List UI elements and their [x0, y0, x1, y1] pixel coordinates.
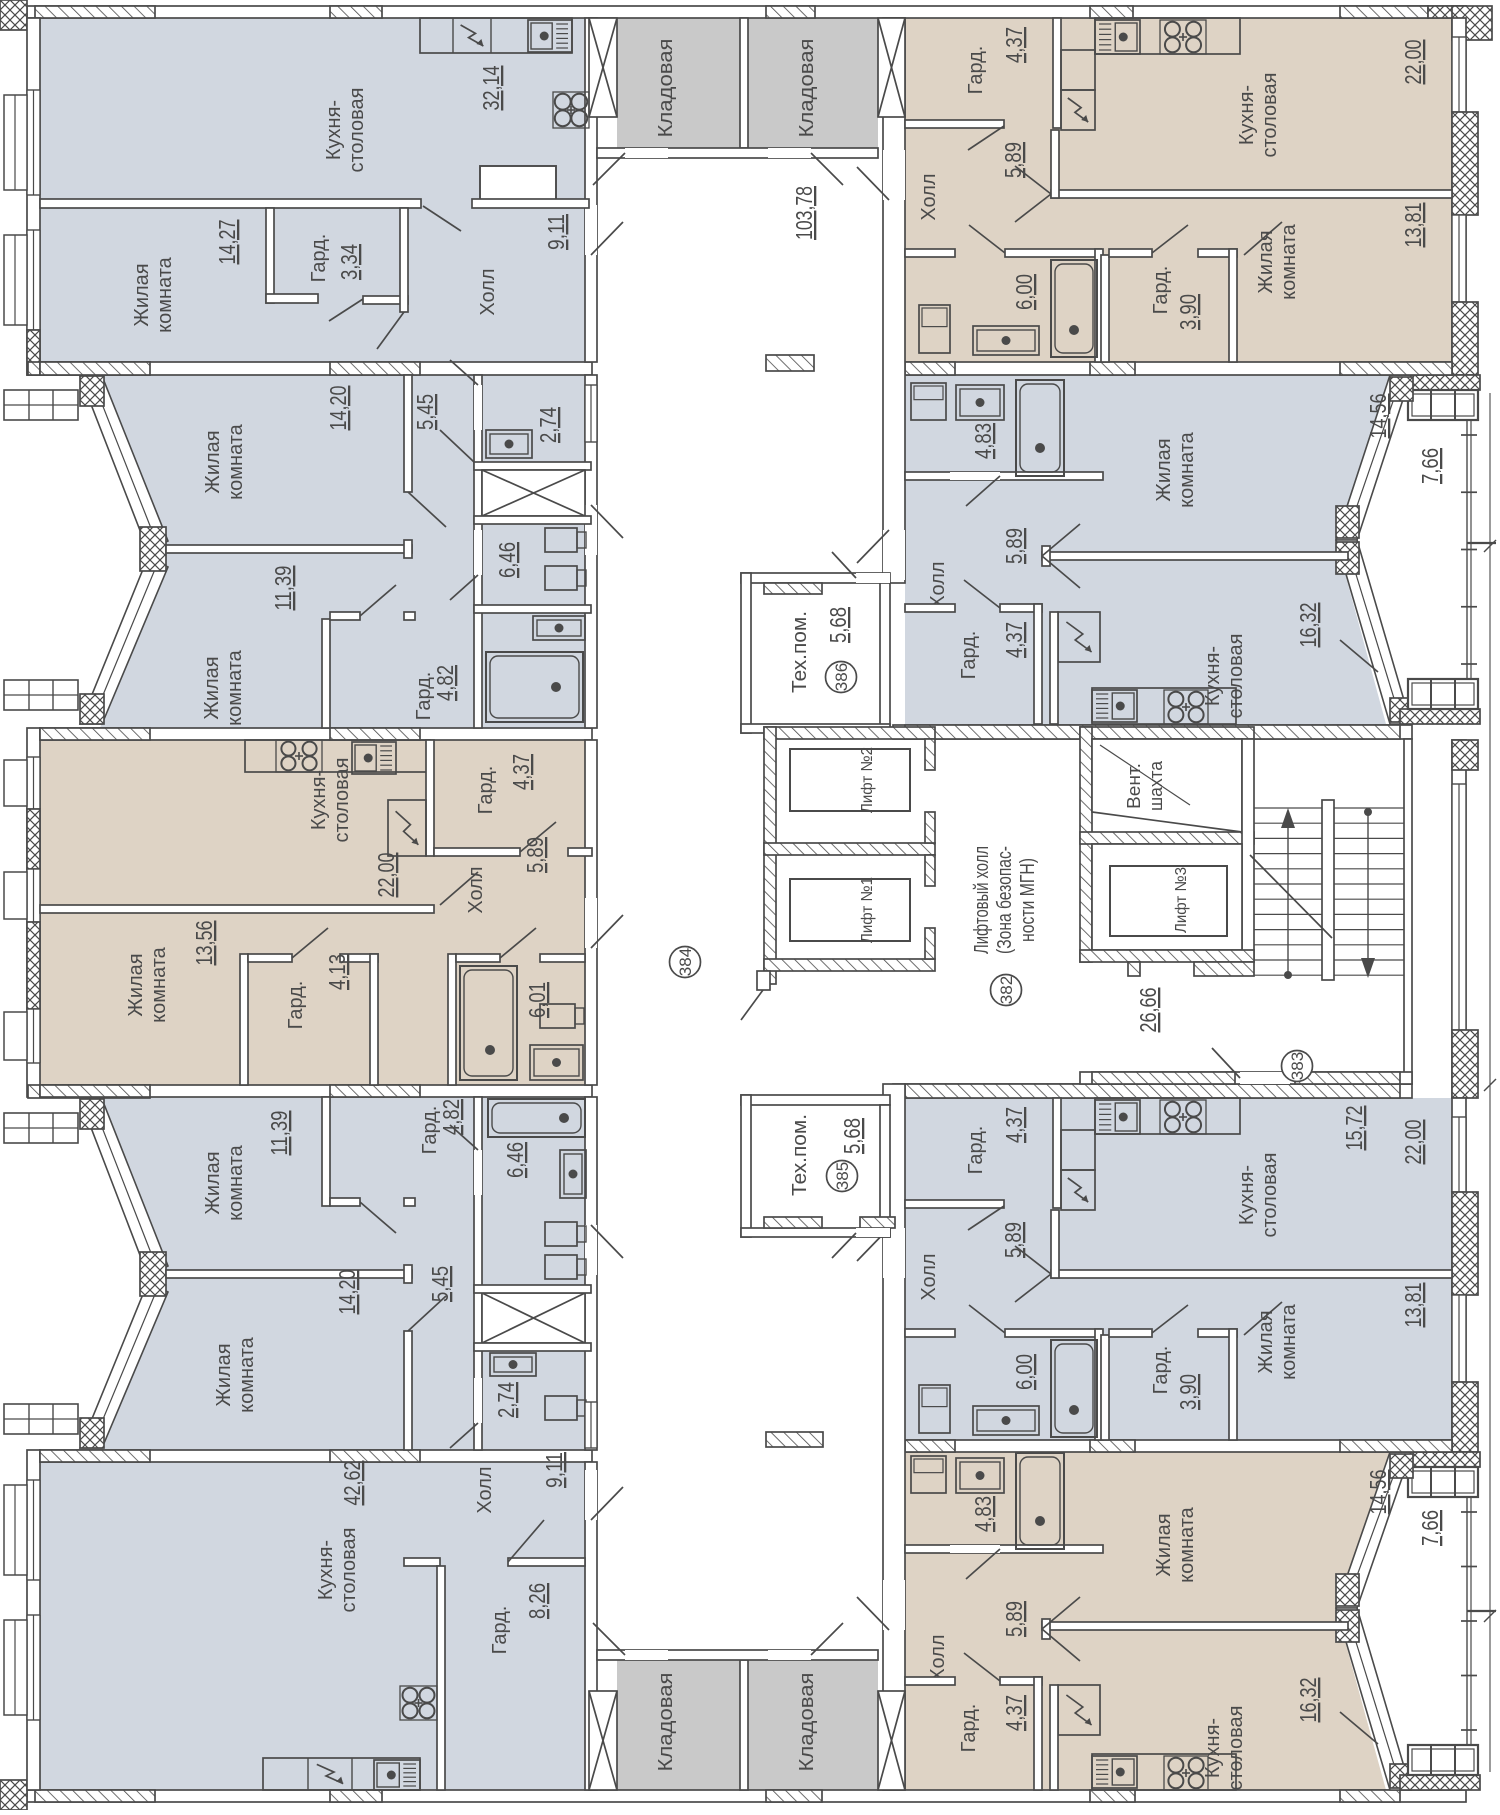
svg-text:6,46: 6,46 [502, 1142, 528, 1178]
svg-text:2,74: 2,74 [535, 407, 561, 443]
svg-text:Кухня-: Кухня- [1236, 1165, 1258, 1225]
svg-text:столовая: столовая [338, 1528, 360, 1613]
svg-text:5,89: 5,89 [522, 837, 548, 873]
svg-text:11,39: 11,39 [266, 1111, 292, 1156]
svg-text:комната: комната [1278, 223, 1300, 300]
svg-text:385: 385 [833, 1162, 852, 1190]
svg-text:комната: комната [236, 1336, 258, 1413]
svg-text:комната: комната [154, 256, 176, 333]
svg-text:Кухня-: Кухня- [315, 1540, 337, 1600]
svg-text:Кухня-: Кухня- [323, 100, 345, 160]
svg-text:ности МГН): ности МГН) [1017, 858, 1039, 942]
svg-text:5,45: 5,45 [412, 394, 438, 430]
svg-text:Жилая: Жилая [131, 263, 153, 326]
svg-text:Гард.: Гард. [285, 981, 307, 1030]
svg-text:Жилая: Жилая [202, 430, 224, 493]
svg-text:7,66: 7,66 [1417, 1510, 1443, 1546]
svg-text:4,83: 4,83 [970, 1496, 996, 1532]
svg-text:Лифт №3: Лифт №3 [1173, 867, 1190, 933]
svg-text:Лифтовый холл: Лифтовый холл [971, 846, 993, 954]
svg-text:Кладовая: Кладовая [655, 1673, 677, 1772]
svg-text:Холл: Холл [465, 866, 487, 913]
svg-text:4,37: 4,37 [1001, 622, 1027, 658]
svg-text:3,34: 3,34 [336, 244, 362, 280]
svg-text:5,68: 5,68 [839, 1118, 865, 1154]
svg-text:Гард.: Гард. [965, 46, 987, 95]
svg-text:Гард.: Гард. [958, 1704, 980, 1753]
svg-text:Тех.пом.: Тех.пом. [789, 611, 811, 693]
svg-text:4,37: 4,37 [1001, 1695, 1027, 1731]
svg-text:8,26: 8,26 [524, 1583, 550, 1619]
svg-text:Тех.пом.: Тех.пом. [789, 1114, 811, 1196]
svg-text:Кладовая: Кладовая [796, 39, 818, 138]
svg-text:4,82: 4,82 [432, 665, 458, 701]
svg-text:Холл: Холл [927, 561, 949, 608]
svg-text:13,56: 13,56 [191, 921, 217, 966]
svg-text:11,39: 11,39 [270, 566, 296, 611]
svg-text:Кухня-: Кухня- [1202, 646, 1224, 706]
svg-text:6,00: 6,00 [1011, 1354, 1037, 1390]
svg-text:Жилая: Жилая [213, 1343, 235, 1406]
svg-text:Лифт №1: Лифт №1 [859, 877, 876, 943]
svg-text:2,74: 2,74 [493, 1382, 519, 1418]
svg-text:комната: комната [148, 946, 170, 1023]
svg-text:Кухня-: Кухня- [1202, 1718, 1224, 1778]
svg-text:4,37: 4,37 [1001, 1107, 1027, 1143]
svg-text:Кладовая: Кладовая [655, 39, 677, 138]
svg-text:5,45: 5,45 [427, 1266, 453, 1302]
svg-text:столовая: столовая [1259, 1153, 1281, 1238]
svg-text:26,66: 26,66 [1135, 988, 1161, 1033]
svg-text:Холл: Холл [474, 1466, 496, 1513]
svg-text:5,89: 5,89 [1001, 528, 1027, 564]
svg-text:14,20: 14,20 [334, 1270, 360, 1315]
svg-text:14,27: 14,27 [214, 220, 240, 265]
svg-text:6,01: 6,01 [524, 982, 550, 1018]
svg-text:Гард.: Гард. [308, 234, 330, 283]
svg-text:4,82: 4,82 [438, 1099, 464, 1135]
svg-text:384: 384 [676, 948, 695, 976]
svg-text:32,14: 32,14 [478, 65, 504, 110]
svg-text:3,90: 3,90 [1175, 1374, 1201, 1410]
svg-text:4,37: 4,37 [508, 754, 534, 790]
svg-text:Жилая: Жилая [1255, 1310, 1277, 1373]
svg-text:22,00: 22,00 [1400, 40, 1426, 85]
svg-text:Гард.: Гард. [1150, 266, 1172, 315]
svg-text:382: 382 [997, 976, 1016, 1004]
svg-text:13,81: 13,81 [1400, 203, 1426, 248]
svg-text:(Зона безопас-: (Зона безопас- [994, 846, 1016, 954]
svg-text:комната: комната [225, 423, 247, 500]
svg-text:5,89: 5,89 [1001, 1601, 1027, 1637]
svg-text:4,37: 4,37 [1001, 27, 1027, 63]
svg-text:Жилая: Жилая [1153, 438, 1175, 501]
svg-text:7,66: 7,66 [1417, 448, 1443, 484]
svg-text:15,72: 15,72 [1341, 1106, 1367, 1151]
svg-text:5,68: 5,68 [825, 607, 851, 643]
svg-text:5,89: 5,89 [1000, 1222, 1026, 1258]
svg-text:Жилая: Жилая [1153, 1513, 1175, 1576]
svg-text:Кухня-: Кухня- [308, 770, 330, 830]
svg-text:6,46: 6,46 [494, 542, 520, 578]
svg-text:Жилая: Жилая [202, 1151, 224, 1214]
svg-text:Гард.: Гард. [489, 1606, 511, 1655]
svg-text:комната: комната [1176, 1506, 1198, 1583]
svg-text:Лифт №2: Лифт №2 [859, 747, 876, 813]
svg-text:16,32: 16,32 [1295, 603, 1321, 648]
svg-text:Жилая: Жилая [1255, 230, 1277, 293]
svg-text:42,62: 42,62 [339, 1461, 365, 1506]
svg-text:Гард.: Гард. [965, 1126, 987, 1175]
svg-text:комната: комната [225, 1144, 247, 1221]
svg-text:14,56: 14,56 [1365, 394, 1391, 439]
svg-text:комната: комната [224, 649, 246, 726]
svg-text:Кухня-: Кухня- [1236, 85, 1258, 145]
svg-text:9,11: 9,11 [541, 1452, 567, 1488]
svg-text:столовая: столовая [1259, 73, 1281, 158]
svg-text:Холл: Холл [918, 173, 940, 220]
svg-text:5,89: 5,89 [1000, 142, 1026, 178]
svg-text:Холл: Холл [477, 268, 499, 315]
svg-text:6,00: 6,00 [1011, 274, 1037, 310]
svg-text:Гард.: Гард. [475, 766, 497, 815]
svg-text:16,32: 16,32 [1295, 1678, 1321, 1723]
svg-text:14,20: 14,20 [325, 386, 351, 431]
svg-text:3,90: 3,90 [1175, 294, 1201, 330]
svg-text:комната: комната [1278, 1303, 1300, 1380]
svg-text:Холл: Холл [927, 1634, 949, 1681]
svg-text:Кладовая: Кладовая [796, 1673, 818, 1772]
svg-text:Гард.: Гард. [958, 631, 980, 680]
svg-text:14,56: 14,56 [1365, 1470, 1391, 1515]
svg-text:4,83: 4,83 [970, 423, 996, 459]
svg-text:13,81: 13,81 [1400, 1283, 1426, 1328]
svg-text:столовая: столовая [331, 758, 353, 843]
svg-text:383: 383 [1288, 1052, 1307, 1080]
svg-text:шахта: шахта [1146, 760, 1166, 811]
svg-text:столовая: столовая [346, 88, 368, 173]
svg-text:Жилая: Жилая [201, 656, 223, 719]
svg-text:22,00: 22,00 [1400, 1120, 1426, 1165]
svg-text:386: 386 [832, 663, 851, 691]
svg-text:комната: комната [1176, 431, 1198, 508]
svg-text:103,78: 103,78 [791, 186, 817, 240]
svg-text:Жилая: Жилая [125, 953, 147, 1016]
svg-text:Холл: Холл [918, 1253, 940, 1300]
svg-text:22,00: 22,00 [373, 853, 399, 898]
svg-text:4,13: 4,13 [324, 954, 350, 990]
svg-text:Гард.: Гард. [1150, 1346, 1172, 1395]
svg-text:Вент.: Вент. [1124, 763, 1144, 809]
svg-text:9,11: 9,11 [543, 214, 569, 250]
